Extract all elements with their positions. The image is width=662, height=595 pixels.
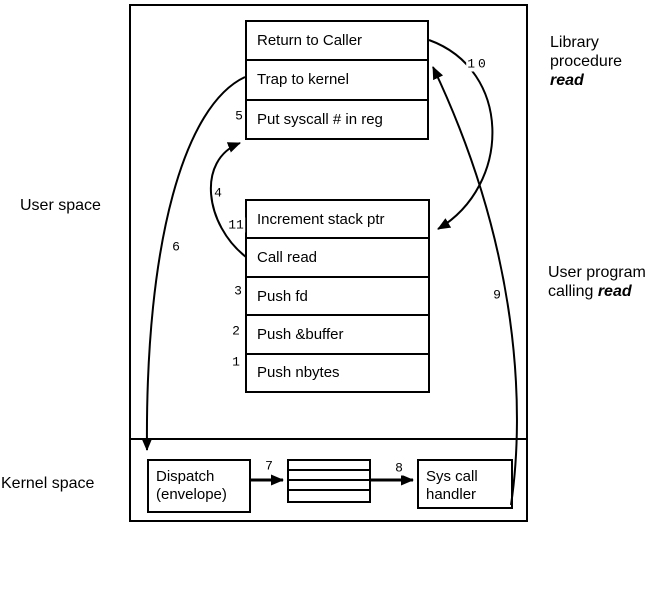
handler-box-line2: handler xyxy=(426,486,511,504)
userprog-box-row-push-buffer: Push &buffer xyxy=(247,314,428,352)
step-label-7: 7 xyxy=(264,459,274,474)
user-kernel-divider xyxy=(129,438,528,440)
library-box-row-trap: Trap to kernel xyxy=(247,59,427,98)
step-label-3: 3 xyxy=(233,284,243,299)
step-label-6: 6 xyxy=(171,240,181,255)
handler-box-line1: Sys call xyxy=(426,468,511,486)
userprog-caption-line2: calling read xyxy=(548,282,646,301)
user-space-label: User space xyxy=(20,196,101,215)
userprog-box-row-push-nbytes: Push nbytes xyxy=(247,353,428,391)
library-caption-line1: Library xyxy=(550,33,622,52)
library-caption-read: read xyxy=(550,71,622,90)
userprog-box-row-push-fd: Push fd xyxy=(247,276,428,314)
dispatch-box: Dispatch (envelope) xyxy=(147,459,251,513)
step-label-1: 1 xyxy=(231,355,241,370)
userprog-caption-read: read xyxy=(598,283,632,300)
step-label-9: 9 xyxy=(492,288,502,303)
syscall-handler-box: Sys call handler xyxy=(417,459,513,509)
user-program-caption: User program calling read xyxy=(548,263,646,301)
library-box-row-put-syscall: Put syscall # in reg xyxy=(247,99,427,138)
user-program-box: Increment stack ptr Call read Push fd Pu… xyxy=(245,199,430,393)
step-label-8: 8 xyxy=(394,461,404,476)
step-label-11: 11 xyxy=(227,218,245,233)
dispatch-box-line2: (envelope) xyxy=(156,486,249,504)
userprog-caption-calling: calling xyxy=(548,283,593,300)
userprog-box-row-increment: Increment stack ptr xyxy=(247,201,428,237)
library-procedure-caption: Library procedure read xyxy=(550,33,622,90)
step-label-5: 5 xyxy=(234,109,244,124)
library-procedure-box: Return to Caller Trap to kernel Put sysc… xyxy=(245,20,429,140)
dispatch-box-line1: Dispatch xyxy=(156,468,249,486)
library-box-row-return: Return to Caller xyxy=(247,22,427,59)
step-label-10: 10 xyxy=(466,57,490,72)
library-caption-line2: procedure xyxy=(550,52,622,71)
userprog-box-row-call-read: Call read xyxy=(247,237,428,275)
kernel-space-label: Kernel space xyxy=(1,474,94,493)
syscall-diagram: Return to Caller Trap to kernel Put sysc… xyxy=(0,0,662,595)
userprog-caption-line1: User program xyxy=(548,263,646,282)
step-label-2: 2 xyxy=(231,324,241,339)
step-label-4: 4 xyxy=(213,186,223,201)
